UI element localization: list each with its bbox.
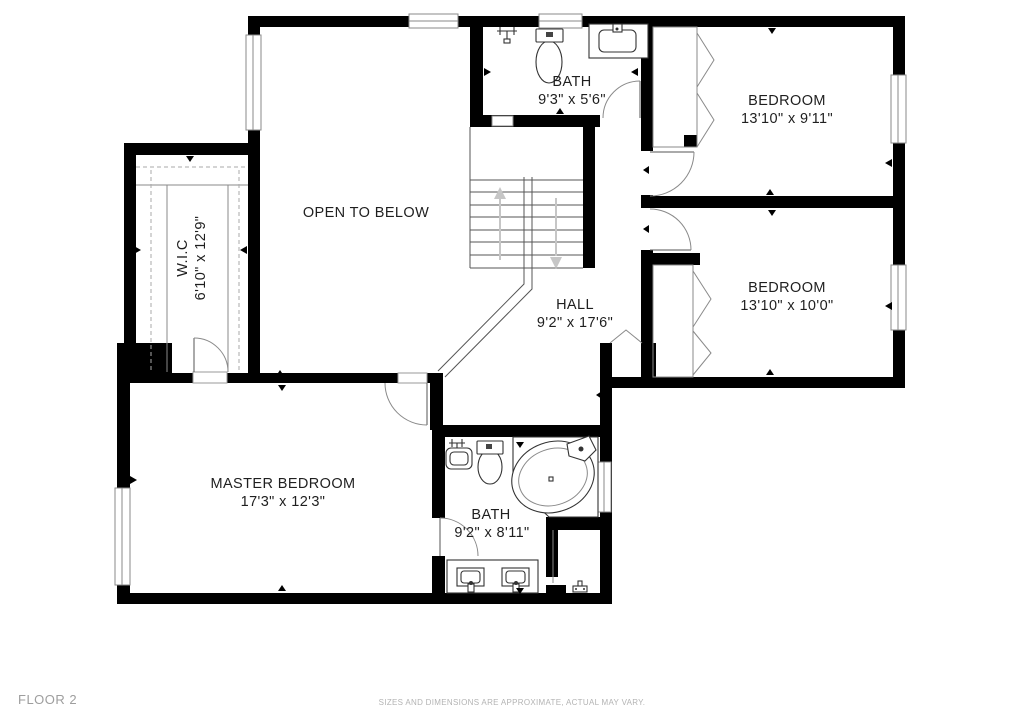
room-labels: OPEN TO BELOW BATH 9'3" x 5'6" BEDROOM 1…	[175, 74, 834, 541]
hall-dims: 9'2" x 17'6"	[537, 315, 613, 331]
toilet-icon	[477, 441, 503, 484]
master-bedroom-dims: 17'3" x 12'3"	[241, 494, 326, 510]
staircase	[438, 127, 583, 377]
sink-icon	[446, 439, 472, 469]
shower-valve-icon	[497, 27, 517, 43]
master-bedroom-label: MASTER BEDROOM	[211, 476, 356, 492]
window-top-left	[409, 14, 458, 28]
shower-fixture-icon	[573, 581, 587, 592]
master-bath-fixtures	[446, 430, 604, 593]
floor-plan-drawing: OPEN TO BELOW BATH 9'3" x 5'6" BEDROOM 1…	[0, 0, 1024, 724]
bedroom-mid-dims: 13'10" x 10'0"	[740, 298, 833, 314]
wic-door	[193, 338, 228, 383]
window-bedroom-top	[891, 75, 906, 143]
closets	[136, 27, 714, 377]
wic-dims: 6'10" x 12'9"	[193, 216, 209, 301]
open-to-below-label: OPEN TO BELOW	[303, 205, 429, 221]
bedroom-top-label: BEDROOM	[748, 93, 826, 109]
upper-bath-label: BATH	[552, 74, 591, 90]
window-top-bath	[539, 14, 582, 28]
window-open-below	[246, 35, 261, 130]
stair-down-arrow	[550, 198, 562, 269]
bedroom-mid-door	[650, 209, 691, 250]
hall-label: HALL	[556, 297, 594, 313]
master-bath-label: BATH	[471, 507, 510, 523]
wic-label: W.I.C	[175, 239, 191, 276]
upper-bath-dims: 9'3" x 5'6"	[538, 92, 606, 108]
bedroom-top-closet	[653, 27, 714, 147]
double-vanity-icon	[447, 560, 538, 593]
footer: FLOOR 2 SIZES AND DIMENSIONS ARE APPROXI…	[18, 692, 645, 707]
floor-number-label: FLOOR 2	[18, 692, 77, 707]
window-master-bath	[597, 462, 611, 512]
floor-plan-page: OPEN TO BELOW BATH 9'3" x 5'6" BEDROOM 1…	[0, 0, 1024, 724]
window-master	[115, 488, 130, 585]
stair-treads	[470, 180, 583, 268]
bedroom-mid-closet	[653, 265, 711, 377]
bedroom-mid-label: BEDROOM	[748, 280, 826, 296]
bedroom-top-door	[650, 152, 694, 196]
window-bedroom-mid	[891, 265, 906, 330]
vanity-sink-icon	[589, 24, 648, 58]
disclaimer-text: SIZES AND DIMENSIONS ARE APPROXIMATE, AC…	[379, 698, 646, 707]
stair-railing	[438, 177, 532, 377]
stair-up-arrow	[494, 187, 506, 260]
corner-tub-icon	[502, 430, 605, 525]
upper-bath-door	[603, 81, 640, 118]
wic-shelving	[136, 167, 248, 372]
bath-niche	[492, 116, 513, 126]
bedroom-top-dims: 13'10" x 9'11"	[741, 111, 833, 127]
master-bath-dims: 9'2" x 8'11"	[454, 525, 529, 541]
linen-closet-door	[610, 330, 642, 343]
